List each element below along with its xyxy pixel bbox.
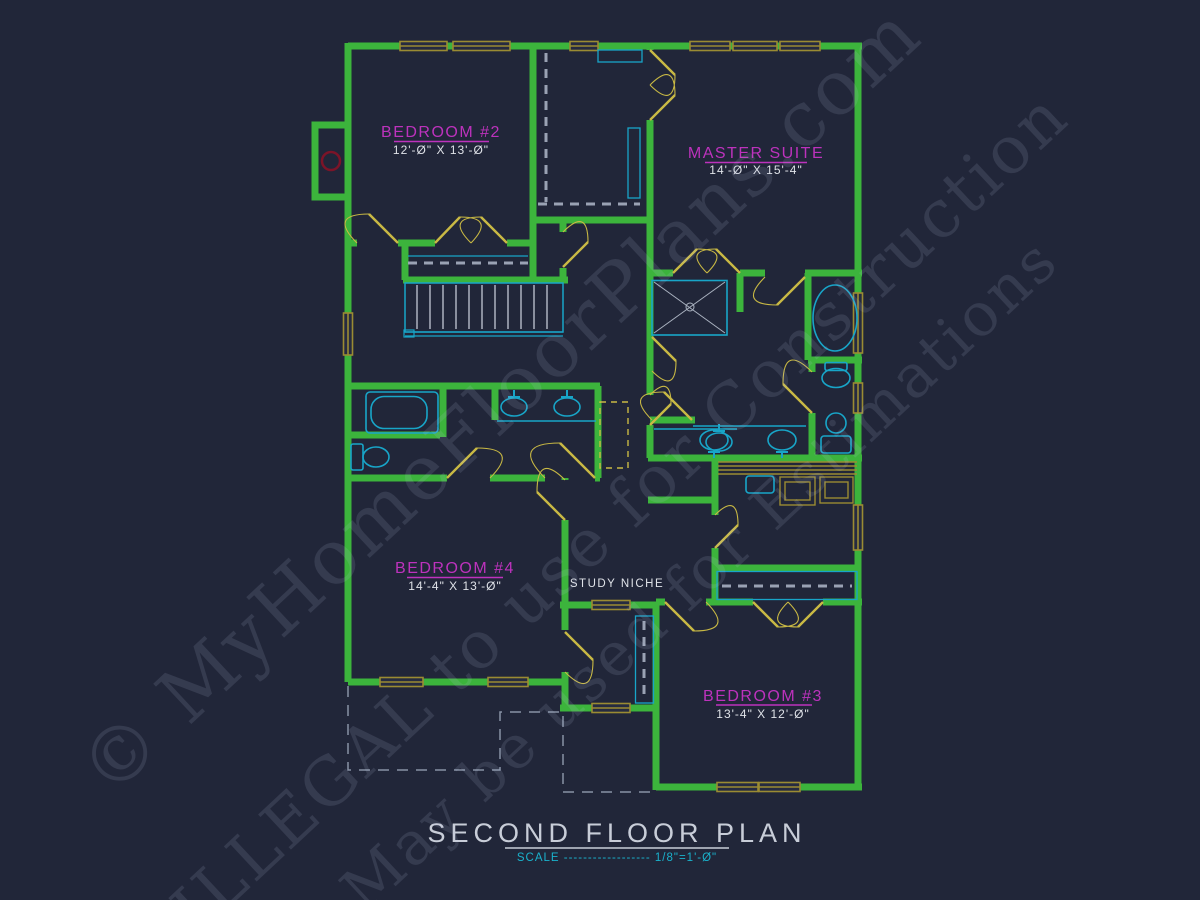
room-dims: 13'-4" X 12'-Ø" <box>716 707 809 721</box>
door-bedroom3-entry <box>665 602 718 631</box>
door-laundry <box>715 506 738 548</box>
bedroom4-label: BEDROOM #4 14'-4" X 13'-Ø" <box>395 560 515 593</box>
scale-note: SCALE ------------------ 1/8"=1'-Ø" <box>517 852 717 864</box>
room-labels: BEDROOM #2 12'-Ø" X 13'-Ø" MASTER SUITE … <box>381 124 824 721</box>
wc-chair-icon <box>821 413 851 453</box>
window <box>733 42 777 51</box>
window <box>592 704 630 713</box>
room-name: BEDROOM #2 <box>381 124 501 141</box>
floor-plan-drawing: BEDROOM #2 12'-Ø" X 13'-Ø" MASTER SUITE … <box>0 0 1200 900</box>
door-masterbath-single <box>753 277 805 305</box>
laundry-area <box>718 462 857 505</box>
hall-vanity-icon <box>497 390 596 421</box>
window <box>400 42 447 51</box>
title-block: SECOND FLOOR PLAN SCALE ----------------… <box>427 818 806 864</box>
window <box>380 678 423 687</box>
washer-icon <box>780 477 815 505</box>
window <box>759 783 800 792</box>
window <box>854 505 863 550</box>
door-master-entry-double <box>650 50 675 120</box>
door-bedroom3-closet-double <box>753 602 823 627</box>
chimney-walls <box>315 125 348 197</box>
stair-treads <box>417 285 547 329</box>
room-dims: 14'-4" X 13'-Ø" <box>408 579 501 593</box>
top-closet-shelf <box>598 50 642 62</box>
sheet-title: SECOND FLOOR PLAN <box>427 818 806 848</box>
door-hallbath <box>447 448 502 478</box>
hallbath-tub-partition <box>348 386 443 437</box>
toilet-icon <box>822 363 850 388</box>
window <box>717 783 758 792</box>
window <box>592 601 630 610</box>
flue-icon <box>322 152 340 170</box>
bedroom2-label: BEDROOM #2 12'-Ø" X 13'-Ø" <box>381 124 501 157</box>
dryer-icon <box>820 477 853 503</box>
door-bonus-room <box>565 632 593 684</box>
door-shower <box>652 337 676 381</box>
master-tub-icon <box>813 285 857 351</box>
roof-outline <box>348 686 656 792</box>
room-name: BEDROOM #3 <box>703 688 823 705</box>
laundry-sink-icon <box>746 476 774 493</box>
study-niche-label: STUDY NICHE <box>570 578 664 590</box>
window <box>488 678 528 687</box>
master-suite-label: MASTER SUITE 14'-Ø" X 15'-4" <box>688 145 824 177</box>
master-vanity-icon <box>693 426 806 458</box>
door-stair-landing <box>563 222 588 267</box>
window <box>570 42 598 51</box>
hall-tub-icon <box>366 392 438 433</box>
door-bedroom2-entry <box>345 214 398 243</box>
door-master-closet <box>640 392 692 420</box>
window <box>344 313 353 355</box>
window <box>690 42 730 51</box>
room-name: BEDROOM #4 <box>395 560 515 577</box>
shower-icon <box>652 281 727 336</box>
attic-access-icon <box>600 402 628 468</box>
window <box>854 383 863 413</box>
door-masterbath-double <box>673 249 740 273</box>
room-name: MASTER SUITE <box>688 145 824 162</box>
stair-rail <box>405 332 563 336</box>
room-dims: 12'-Ø" X 13'-Ø" <box>393 143 489 157</box>
toilet-icon <box>351 444 389 470</box>
laundry-counter-hatch <box>718 462 857 474</box>
floor-plan-sheet: BEDROOM #2 12'-Ø" X 13'-Ø" MASTER SUITE … <box>0 0 1200 900</box>
room-name: STUDY NICHE <box>570 578 664 590</box>
staircase <box>404 283 563 337</box>
door-water-closet <box>783 360 812 413</box>
room-dims: 14'-Ø" X 15'-4" <box>709 163 802 177</box>
bedroom3-label: BEDROOM #3 13'-4" X 12'-Ø" <box>703 688 823 721</box>
top-closet-cabinet <box>628 128 640 198</box>
window <box>453 42 510 51</box>
door-bedroom2-closet-double <box>435 217 507 243</box>
faucet-icon <box>508 390 573 397</box>
window <box>780 42 820 51</box>
